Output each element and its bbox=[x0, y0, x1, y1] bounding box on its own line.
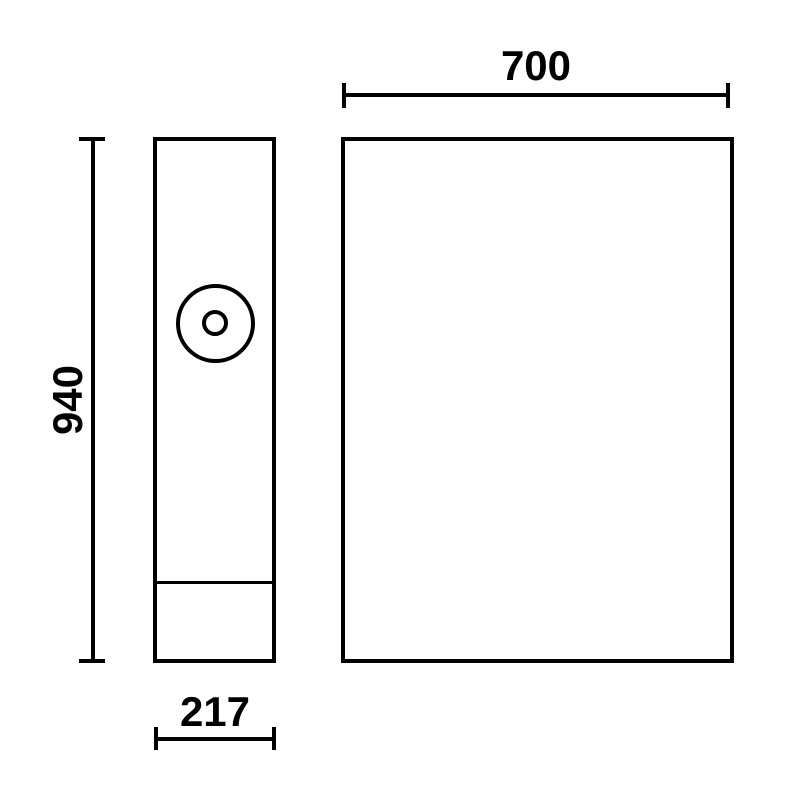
width-dimension-line bbox=[342, 93, 730, 97]
side-view-outline bbox=[153, 137, 276, 663]
dimension-drawing-canvas: 700 940 217 bbox=[0, 0, 800, 799]
height-dimension-top-tick bbox=[79, 137, 105, 141]
width-dimension-label: 700 bbox=[342, 45, 730, 87]
knob-inner-circle bbox=[202, 310, 228, 336]
depth-dimension-line bbox=[154, 737, 276, 741]
front-view-outline bbox=[341, 137, 734, 663]
height-dimension-label: 940 bbox=[47, 330, 89, 470]
side-view-seam-line bbox=[157, 581, 272, 584]
height-dimension-line bbox=[91, 139, 95, 661]
height-dimension-bottom-tick bbox=[79, 659, 105, 663]
depth-dimension-label: 217 bbox=[154, 691, 276, 733]
